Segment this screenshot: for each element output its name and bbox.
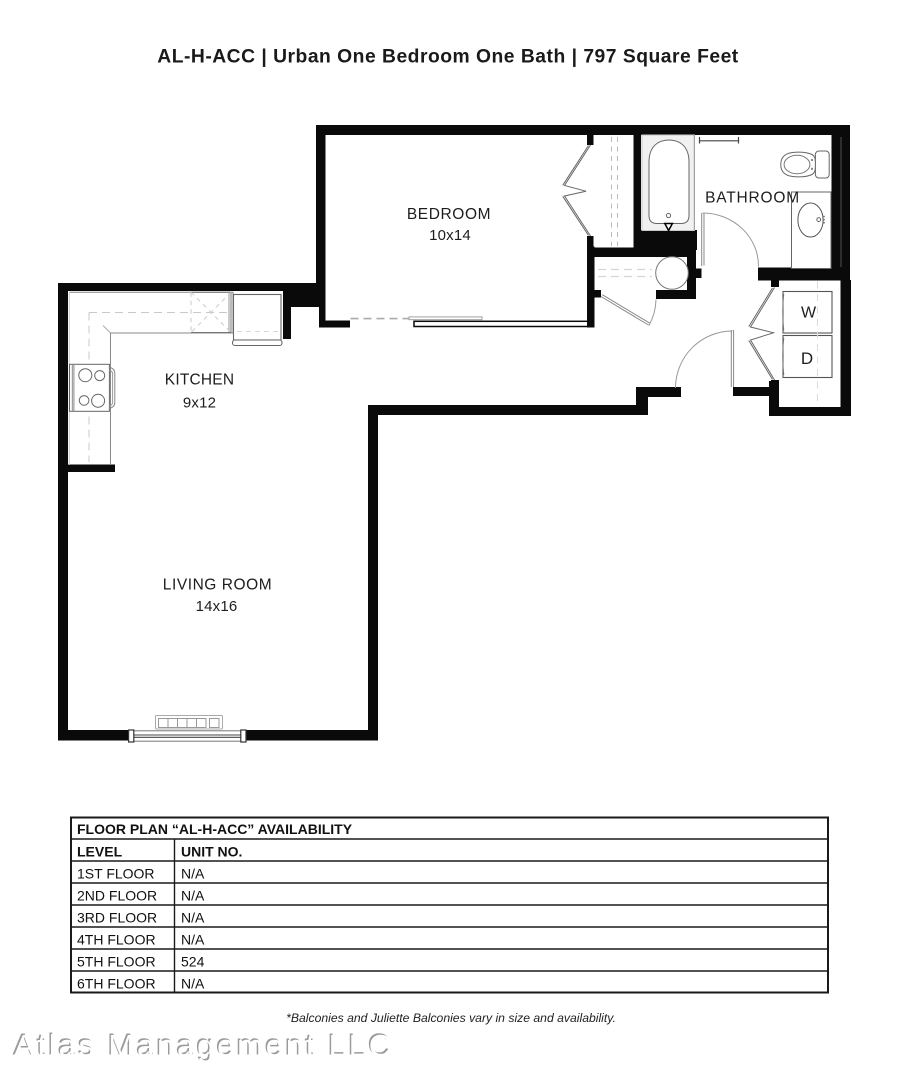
svg-text:14x16: 14x16 <box>196 598 238 615</box>
svg-text:3RD FLOOR: 3RD FLOOR <box>77 910 157 926</box>
svg-text:W: W <box>801 305 817 322</box>
svg-text:N/A: N/A <box>181 976 205 992</box>
svg-text:LEVEL: LEVEL <box>77 844 123 860</box>
svg-text:N/A: N/A <box>181 932 205 948</box>
svg-text:KITCHEN: KITCHEN <box>165 372 234 389</box>
svg-text:N/A: N/A <box>181 888 205 904</box>
svg-text:1ST FLOOR: 1ST FLOOR <box>77 866 155 882</box>
svg-text:524: 524 <box>181 954 205 970</box>
svg-text:D: D <box>801 349 813 368</box>
svg-text:*Balconies and Juliette Balcon: *Balconies and Juliette Balconies vary i… <box>286 1011 616 1025</box>
svg-text:N/A: N/A <box>181 866 205 882</box>
svg-text:5TH FLOOR: 5TH FLOOR <box>77 954 156 970</box>
svg-text:N/A: N/A <box>181 910 205 926</box>
svg-text:4TH FLOOR: 4TH FLOOR <box>77 932 156 948</box>
svg-text:AL-H-ACC | Urban One Bedroom O: AL-H-ACC | Urban One Bedroom One Bath | … <box>157 47 739 68</box>
svg-text:UNIT NO.: UNIT NO. <box>181 844 242 860</box>
svg-text:6TH FLOOR: 6TH FLOOR <box>77 976 156 992</box>
svg-text:BEDROOM: BEDROOM <box>407 206 491 223</box>
svg-text:LIVING ROOM: LIVING ROOM <box>163 577 272 594</box>
svg-text:9x12: 9x12 <box>183 395 216 412</box>
svg-text:FLOOR PLAN “AL-H-ACC” AVAILABI: FLOOR PLAN “AL-H-ACC” AVAILABILITY <box>77 821 353 837</box>
svg-text:Atlas Management LLC: Atlas Management LLC <box>14 1028 394 1063</box>
svg-text:2ND FLOOR: 2ND FLOOR <box>77 888 157 904</box>
svg-text:10x14: 10x14 <box>429 227 471 244</box>
svg-text:BATHROOM: BATHROOM <box>705 190 800 207</box>
